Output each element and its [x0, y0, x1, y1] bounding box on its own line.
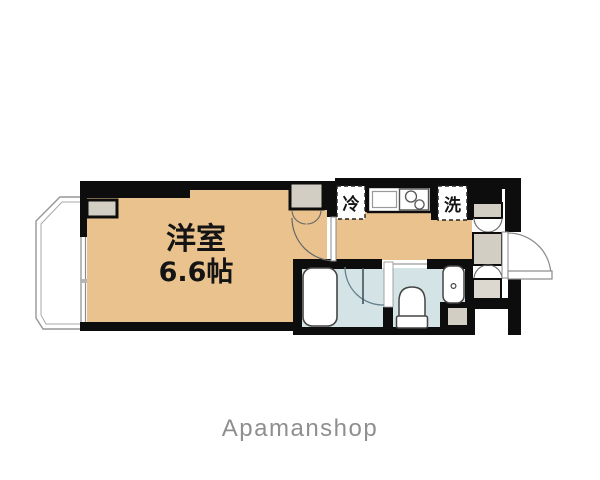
entrance-step-box: [473, 279, 501, 299]
window: [80, 237, 87, 322]
entrance-door-arc-icon: [508, 233, 551, 276]
bath-toilet-partition-upper: [384, 262, 393, 307]
stove-burner-icon: [406, 191, 417, 202]
lower-step-box: [448, 308, 467, 325]
room-area-label: 6.6帖: [159, 257, 234, 288]
wall-bath-toilet-lower: [383, 307, 393, 329]
wall-room-bath: [293, 259, 302, 329]
toilet-tank-icon: [397, 316, 428, 328]
toilet-bowl-icon: [399, 287, 425, 318]
kitchen-sink-icon: [373, 192, 397, 208]
wall-room-bottom: [80, 322, 302, 331]
room-door-leaf: [331, 217, 336, 261]
refrigerator-space: 冷: [337, 186, 365, 219]
closet-box: [290, 183, 323, 209]
room-name-label: 洋室: [166, 222, 226, 257]
floorplan-canvas: 冷 洗 洋室 6.6帖 Apamanshop: [0, 0, 600, 480]
entrance-door: [502, 232, 552, 279]
washbasin-icon: [443, 266, 464, 303]
balcony-outer-line: [36, 197, 82, 329]
window-center-tick: [80, 279, 87, 283]
fridge-label: 冷: [343, 194, 360, 215]
washer-label: 洗: [444, 195, 461, 216]
stove-burner-icon: [415, 200, 424, 209]
entrance-door-leaf: [508, 271, 552, 279]
entrance-door-opening: [502, 232, 508, 278]
washer-space: 洗: [438, 186, 467, 220]
wall-top-left-thick: [82, 181, 190, 198]
shoe-cabinet-box: [473, 203, 502, 218]
hall-storage-box: [473, 233, 502, 265]
kitchen-unit: [368, 187, 431, 212]
pipe-space-box: [87, 200, 117, 217]
floorplan-drawing: 冷 洗 洋室 6.6帖 Apamanshop: [0, 0, 600, 480]
brand-logo-text: Apamanshop: [222, 415, 378, 442]
wall-right-top: [505, 178, 521, 232]
wall-corridor-bottom-left: [293, 259, 382, 269]
bathtub-icon: [303, 268, 337, 326]
toilet-icon: [397, 287, 428, 328]
washbasin-drain-icon: [451, 284, 456, 289]
balcony: [36, 197, 82, 329]
